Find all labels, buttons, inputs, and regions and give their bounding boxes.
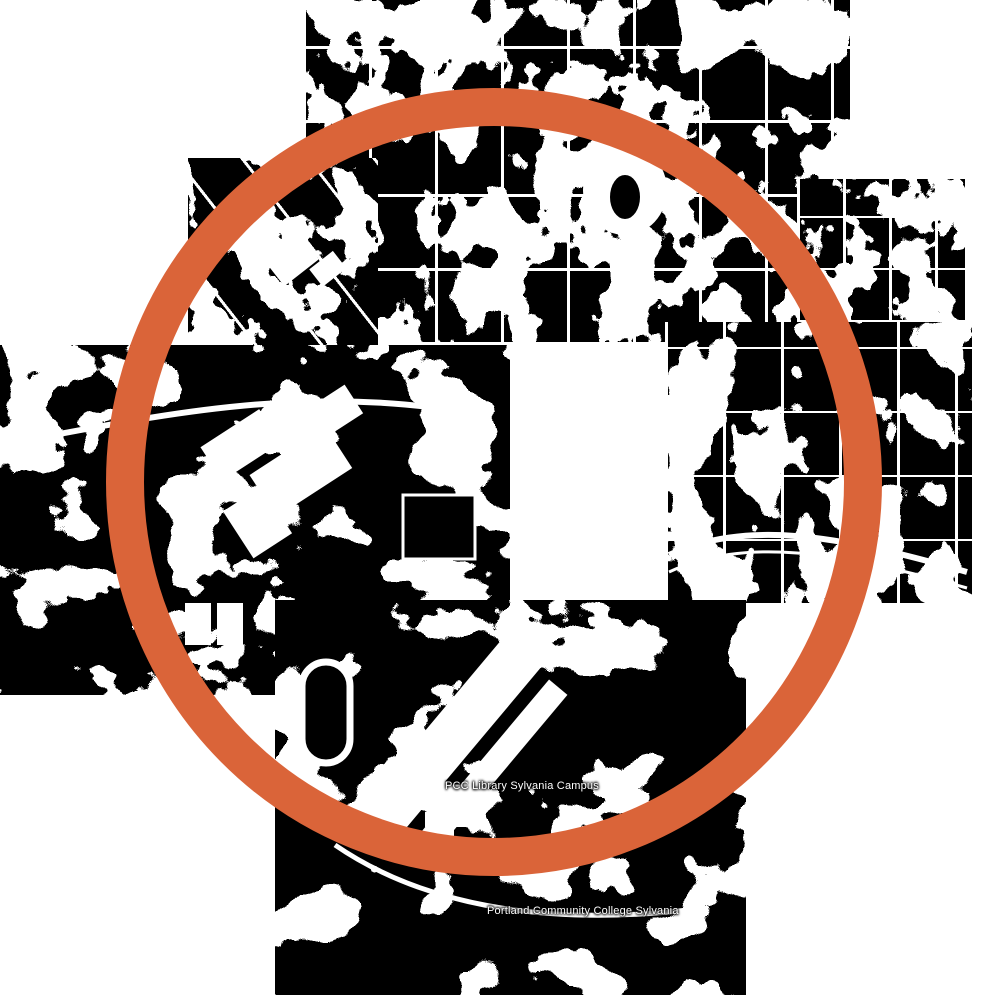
building-cluster — [266, 226, 347, 305]
building-cluster — [187, 363, 397, 558]
running-track — [302, 662, 350, 763]
parking-rows — [185, 603, 211, 645]
tile-features — [303, 0, 850, 345]
aerial-speckle — [797, 179, 965, 322]
map-tile-top-left — [188, 158, 378, 345]
cross-building — [439, 798, 454, 842]
map-tile-middle-right — [665, 322, 972, 605]
building-cluster — [360, 617, 587, 864]
map-tile-bottom-center — [275, 600, 746, 995]
tile-features — [665, 322, 972, 605]
parking-lot-outline — [403, 495, 475, 559]
freeway-curve — [669, 535, 967, 572]
map-label-pcc-library[interactable]: PCC Library Sylvania Campus — [445, 780, 599, 793]
map-tile-top-center — [303, 0, 850, 345]
tile-features — [188, 158, 378, 345]
parking-rows — [217, 603, 243, 645]
map-tile-top-right — [797, 179, 965, 322]
map-label-pcc-sylvania-campus[interactable]: Portland Community College Sylvania — [487, 905, 679, 918]
tile-features — [275, 600, 746, 995]
map-canvas[interactable]: PCC Library Sylvania Campus Portland Com… — [0, 0, 1000, 997]
